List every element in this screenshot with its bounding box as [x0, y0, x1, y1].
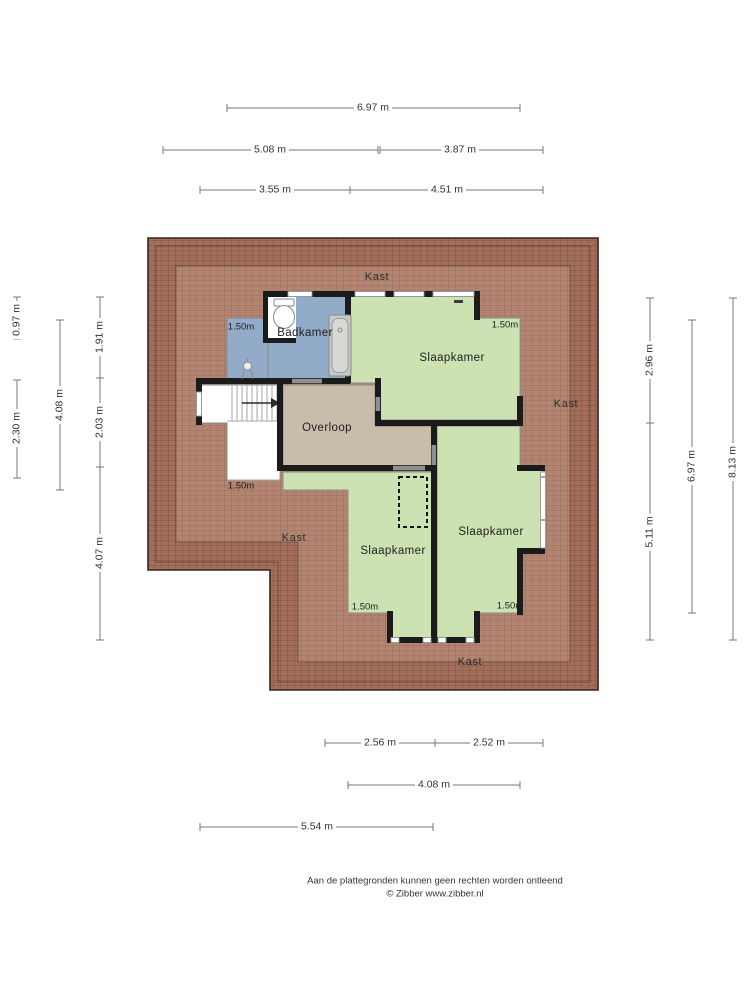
- dim-top-5: 4.51 m: [428, 184, 466, 197]
- room-label-overloop: Overloop: [302, 422, 352, 434]
- dim-top-2: 5.08 m: [251, 144, 289, 157]
- room-label-slaapkamer-top: Slaapkamer: [419, 352, 484, 364]
- kast-label-top: Kast: [365, 271, 389, 283]
- dim-right-2: 5.11 m: [644, 513, 657, 550]
- toilet-bowl: [274, 306, 295, 329]
- floorplan-drawing: [0, 0, 750, 1000]
- room-label-badkamer: Badkamer: [277, 327, 333, 339]
- height-marker-slaapkamer-top: 1.50m: [492, 320, 518, 331]
- floorplan-page: 6.97 m 5.08 m 3.87 m 3.55 m 4.51 m 0.97 …: [0, 0, 750, 1000]
- dim-top-3: 3.87 m: [441, 144, 479, 157]
- room-label-slaapkamer-bottom-left: Slaapkamer: [360, 545, 425, 557]
- dim-left-4: 1.91 m: [94, 318, 107, 356]
- kast-label-bottom: Kast: [458, 656, 482, 668]
- height-marker-slaapkamer-bottom-right: 1.50m: [497, 601, 523, 612]
- dim-top-4: 3.55 m: [256, 184, 294, 197]
- dim-bottom-2: 2.52 m: [470, 737, 508, 750]
- dim-bottom-4: 5.54 m: [298, 821, 336, 834]
- dim-top-1: 6.97 m: [354, 102, 392, 115]
- dim-left-3: 4.08 m: [54, 386, 67, 424]
- height-marker-slaapkamer-bottom-left: 1.50m: [352, 602, 378, 613]
- dim-right-3: 6.97 m: [686, 447, 699, 485]
- height-marker-badkamer: 1.50m: [228, 322, 254, 333]
- dim-right-1: 2.96 m: [644, 341, 657, 379]
- dim-left-1: 0.97 m: [11, 301, 24, 339]
- dim-bottom-1: 2.56 m: [361, 737, 399, 750]
- dim-left-6: 4.07 m: [94, 534, 107, 572]
- toilet-tank: [274, 299, 294, 306]
- footer-copyright: © Zibber www.zibber.nl: [386, 889, 483, 900]
- dim-left-5: 2.03 m: [94, 403, 107, 441]
- room-label-slaapkamer-bottom-right: Slaapkamer: [458, 526, 523, 538]
- footer-disclaimer: Aan de plattegronden kunnen geen rechten…: [307, 876, 563, 887]
- height-marker-stairs: 1.50m: [228, 481, 254, 492]
- kast-label-right: Kast: [554, 398, 578, 410]
- kast-label-left: Kast: [282, 532, 306, 544]
- dim-left-2: 2.30 m: [11, 409, 24, 447]
- dim-bottom-3: 4.08 m: [415, 779, 453, 792]
- dim-right-4: 8.13 m: [727, 443, 740, 481]
